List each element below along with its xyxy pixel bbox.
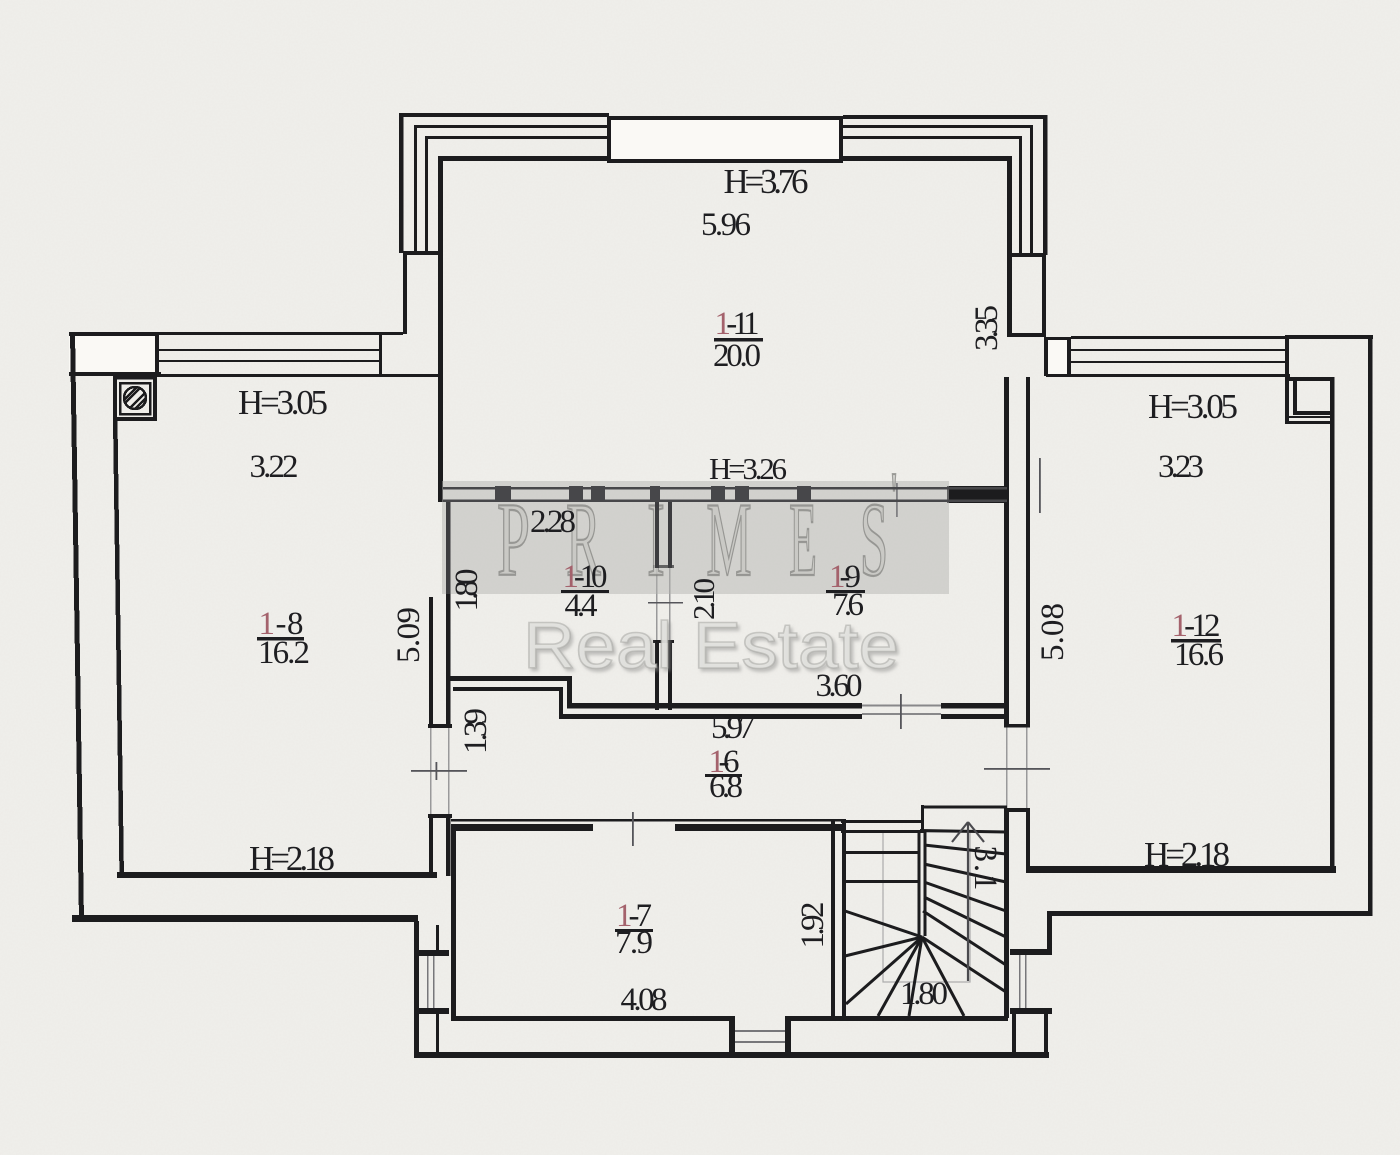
svg-text:H=3.76: H=3.76 <box>724 162 809 201</box>
svg-text:5.08: 5.08 <box>1035 603 1071 661</box>
svg-text:4.4: 4.4 <box>565 588 598 624</box>
svg-text:3.1: 3.1 <box>967 846 1003 891</box>
svg-text:5.09: 5.09 <box>391 607 427 663</box>
svg-text:20.0: 20.0 <box>713 338 761 374</box>
svg-text:4.08: 4.08 <box>621 982 668 1018</box>
svg-text:5.97: 5.97 <box>711 710 755 746</box>
svg-text:1-11: 1-11 <box>715 306 760 342</box>
svg-text:3.23: 3.23 <box>1158 449 1204 485</box>
svg-text:H=3.05: H=3.05 <box>238 383 328 422</box>
svg-text:1.80: 1.80 <box>900 976 948 1012</box>
svg-text:H=3.05: H=3.05 <box>1148 387 1238 426</box>
svg-text:H=2.18: H=2.18 <box>1144 835 1230 874</box>
svg-text:2.28: 2.28 <box>530 504 576 540</box>
svg-text:1.39: 1.39 <box>458 708 494 754</box>
svg-text:1.92: 1.92 <box>795 902 831 949</box>
svg-text:': ' <box>891 458 897 535</box>
svg-text:H=3.26: H=3.26 <box>709 451 787 486</box>
svg-text:3.22: 3.22 <box>250 449 299 485</box>
svg-text:2.10: 2.10 <box>686 578 721 620</box>
svg-text:H=2.18: H=2.18 <box>249 839 335 878</box>
svg-text:1.80: 1.80 <box>449 569 485 612</box>
svg-text:S: S <box>860 481 888 598</box>
svg-text:5.96: 5.96 <box>701 207 751 243</box>
svg-text:3.60: 3.60 <box>816 668 863 704</box>
svg-text:3.35: 3.35 <box>969 305 1005 351</box>
